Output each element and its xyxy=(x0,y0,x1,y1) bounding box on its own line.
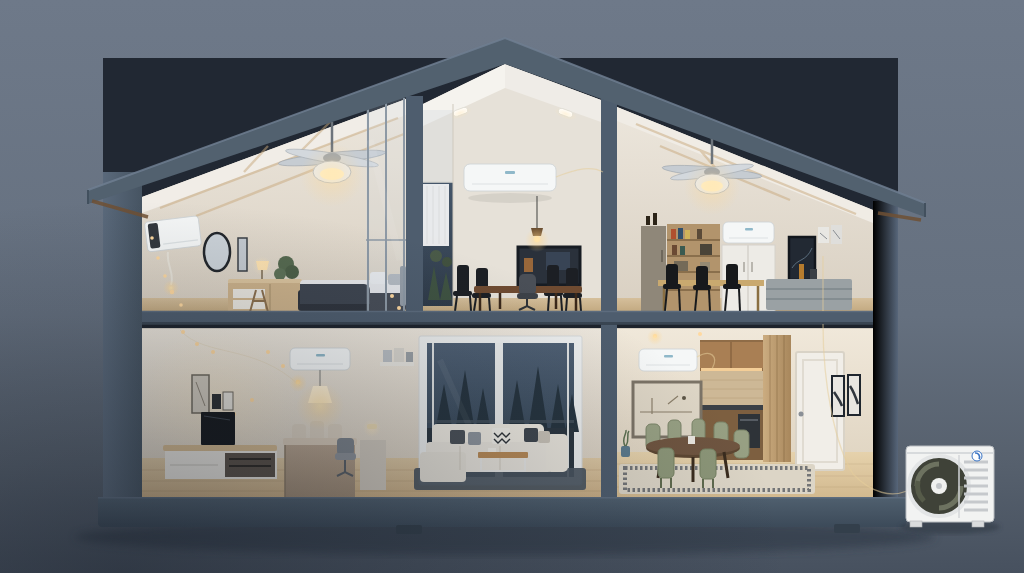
tall-cabinet xyxy=(641,213,666,312)
wall-mirror-small xyxy=(238,238,247,271)
indoor-ac-unit-bedroom xyxy=(144,216,201,252)
indoor-ac-unit-dining xyxy=(464,164,556,203)
condenser-louvers xyxy=(964,462,988,510)
indoor-ac-unit-living xyxy=(290,348,350,370)
room-upper-dining xyxy=(423,64,601,311)
condenser-foot xyxy=(972,521,984,527)
partition-column-upper xyxy=(406,96,423,311)
framed-sketch-art xyxy=(633,382,701,437)
indoor-ac-unit-dining-room xyxy=(639,349,697,371)
indoor-ac-unit-studio xyxy=(723,222,774,243)
scene-canvas xyxy=(0,0,1024,573)
media-console xyxy=(163,445,277,479)
condenser-foot xyxy=(910,521,922,527)
divider-lower xyxy=(601,324,617,497)
window-with-curtain xyxy=(423,104,453,306)
floor-band xyxy=(103,311,898,325)
left-wall xyxy=(103,172,142,505)
house-cutaway-illustration xyxy=(0,0,1024,573)
brand-logo xyxy=(972,451,982,461)
divider-upper xyxy=(601,94,617,311)
house-foot xyxy=(396,525,422,534)
glass-partition xyxy=(366,98,406,311)
tv xyxy=(201,412,235,449)
room-lower-dining xyxy=(617,324,873,497)
room-lower-living xyxy=(130,324,601,497)
round-mirror xyxy=(204,233,230,271)
door-knob xyxy=(799,412,804,417)
house-foot xyxy=(834,524,860,533)
dresser xyxy=(228,279,302,312)
outdoor-condenser-unit xyxy=(900,446,1000,534)
right-wall xyxy=(873,201,898,505)
condenser-fan xyxy=(909,456,969,516)
dining-rug xyxy=(619,464,815,494)
